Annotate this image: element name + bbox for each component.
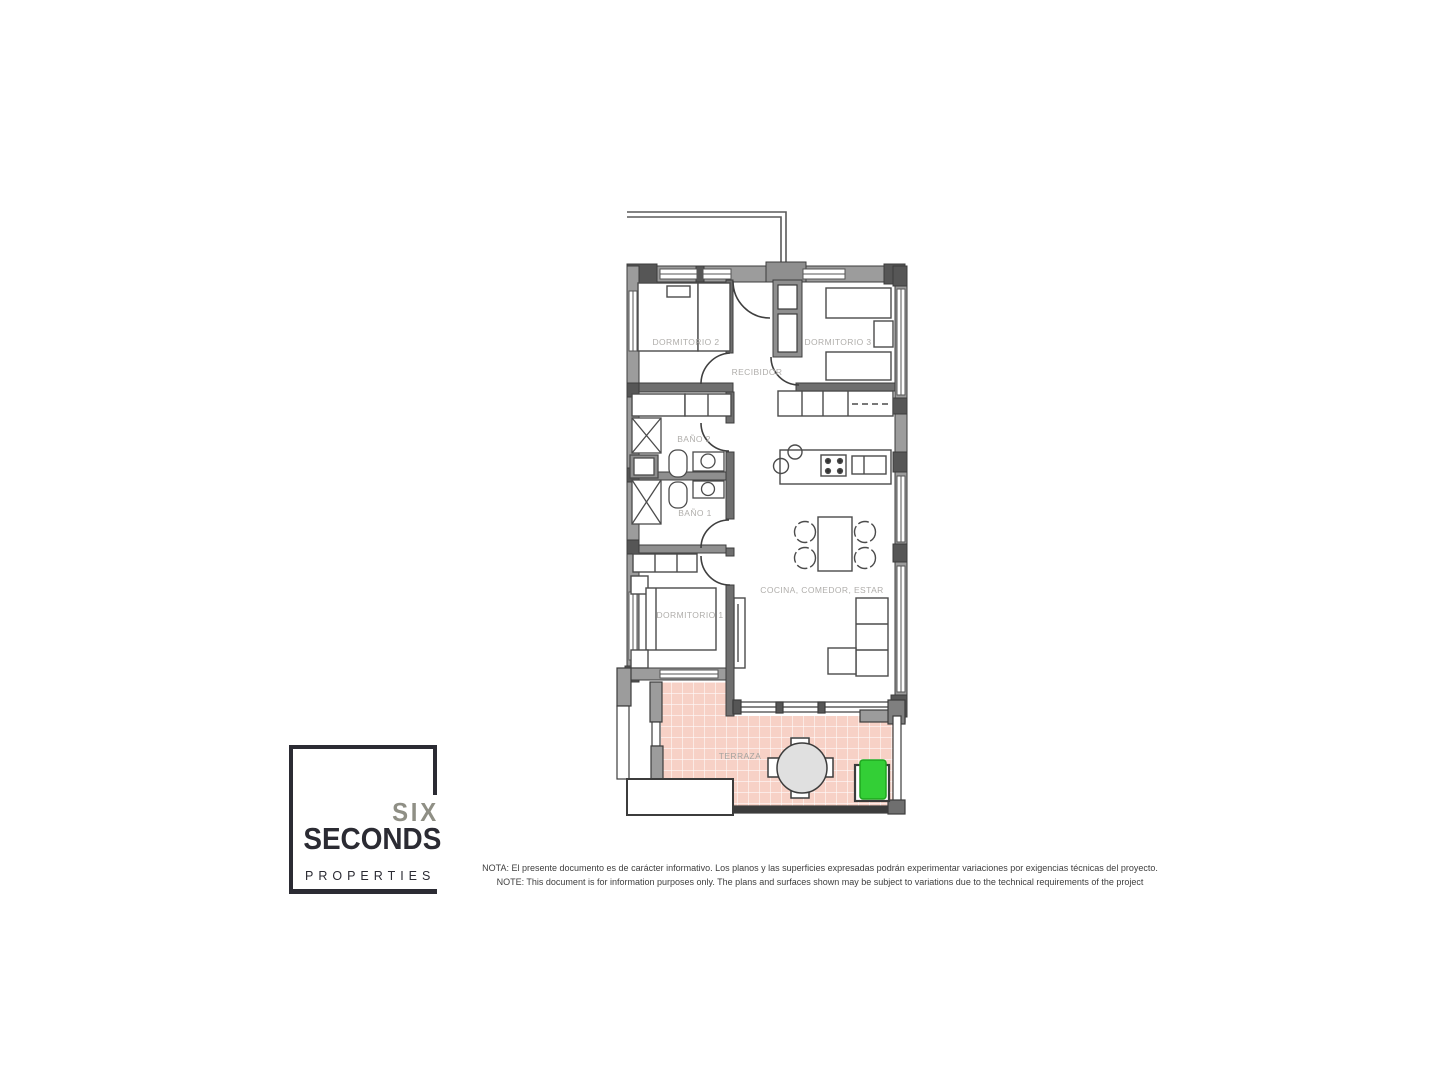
label-dormitorio-2: DORMITORIO 2 — [653, 337, 720, 347]
disclaimer-note: NOTA: El presente documento es de caráct… — [390, 862, 1250, 889]
disclaimer-line-english: NOTE: This document is for information p… — [390, 876, 1250, 890]
disclaimer-line-spanish: NOTA: El presente documento es de caráct… — [390, 862, 1250, 876]
label-recibidor: RECIBIDOR — [732, 367, 783, 377]
label-dormitorio-3: DORMITORIO 3 — [805, 337, 872, 347]
label-bano-1: BAÑO 1 — [678, 508, 712, 518]
label-terraza: TERRAZA — [719, 751, 761, 761]
logo-word-seconds: SECONDS — [303, 823, 441, 854]
page: DORMITORIO 2 DORMITORIO 3 RECIBIDOR BAÑO… — [0, 0, 1440, 1080]
logo-frame-segment — [433, 749, 437, 795]
floor-plan-drawing: DORMITORIO 2 DORMITORIO 3 RECIBIDOR BAÑO… — [0, 0, 1440, 1080]
site-boundary-line — [627, 212, 786, 268]
room-dormitorio-2 — [632, 283, 731, 416]
label-cocina-comedor-estar: COCINA, COMEDOR, ESTAR — [760, 585, 883, 595]
room-dormitorio-3 — [826, 288, 893, 380]
green-marker — [855, 760, 889, 801]
label-bano-2: BAÑO 2 — [677, 434, 711, 444]
kitchen-living — [734, 391, 893, 676]
label-dormitorio-1: DORMITORIO 1 — [657, 610, 724, 620]
